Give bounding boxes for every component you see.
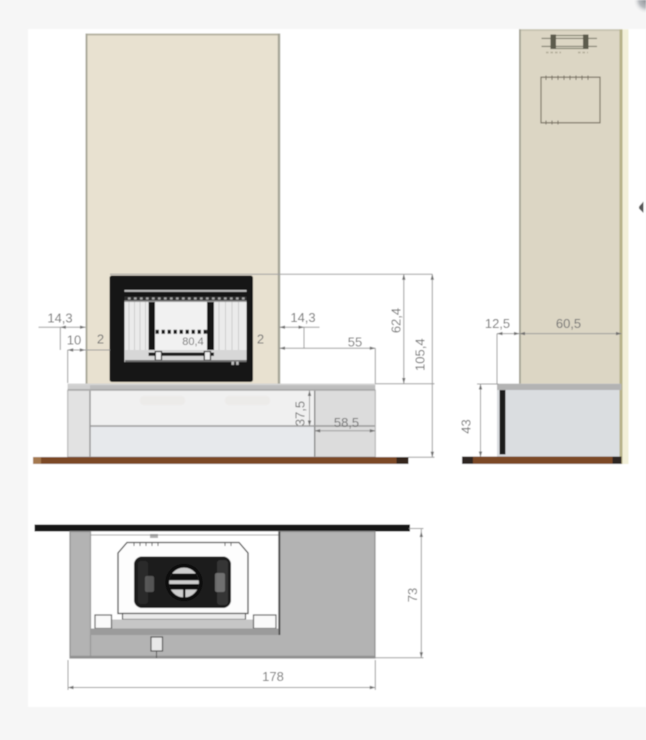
svg-text:10: 10	[67, 333, 81, 348]
svg-text:2: 2	[97, 332, 104, 347]
svg-text:2: 2	[257, 332, 264, 347]
svg-text:60,5: 60,5	[556, 316, 581, 331]
svg-text:105,4: 105,4	[413, 338, 428, 371]
svg-text:55: 55	[348, 335, 362, 350]
svg-text:62,4: 62,4	[389, 308, 404, 333]
svg-text:43: 43	[459, 419, 474, 433]
svg-text:14,3: 14,3	[47, 311, 72, 326]
svg-text:80,4: 80,4	[182, 336, 203, 348]
svg-text:14,3: 14,3	[290, 310, 315, 325]
svg-text:73: 73	[405, 588, 420, 602]
svg-text:37,5: 37,5	[293, 401, 308, 426]
svg-text:12,5: 12,5	[485, 316, 510, 331]
svg-text:178: 178	[262, 669, 284, 684]
svg-text:58,5: 58,5	[334, 415, 359, 430]
